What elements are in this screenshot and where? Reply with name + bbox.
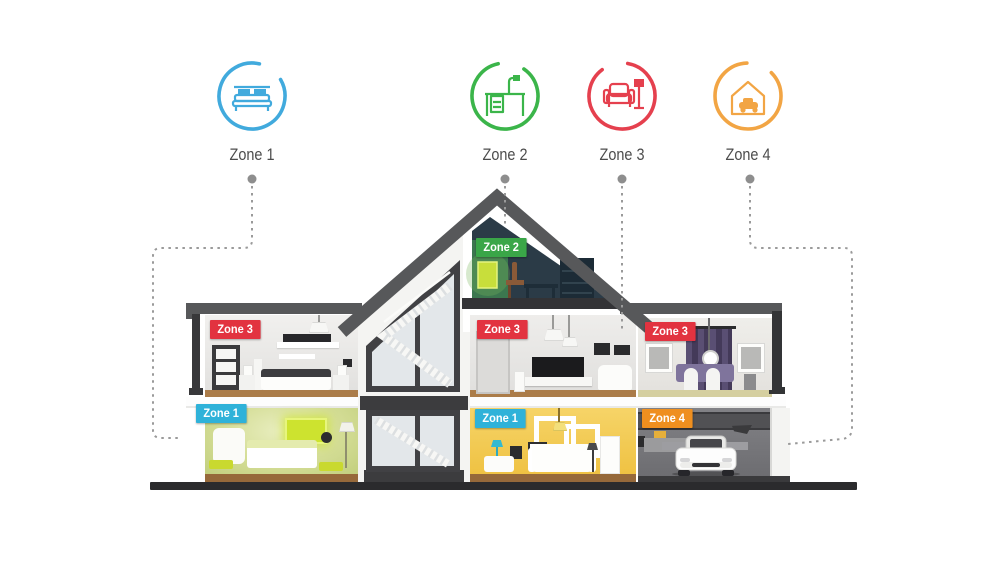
zone3-caption: Zone 3 xyxy=(571,145,673,165)
badge-attic: Zone 2 xyxy=(476,238,526,257)
badge-living-upper-center: Zone 3 xyxy=(477,320,527,339)
connector-zone1 xyxy=(153,186,252,438)
legend-zone3: Zone 3 xyxy=(562,58,682,165)
zone1-caption: Zone 1 xyxy=(201,145,303,165)
connector-dots xyxy=(248,175,755,184)
sofa-floor-lamp-icon xyxy=(584,58,660,134)
badge-garage: Zone 4 xyxy=(642,409,692,428)
zone-connectors xyxy=(153,186,852,444)
legend-zone4: Zone 4 xyxy=(688,58,808,165)
garage-car-icon xyxy=(710,58,786,134)
legend-zone1: Zone 1 xyxy=(192,58,312,165)
bed-icon xyxy=(214,58,290,134)
badge-bedroom-upper-left: Zone 3 xyxy=(210,320,260,339)
zone2-caption: Zone 2 xyxy=(454,145,556,165)
badge-dining-upper-right: Zone 3 xyxy=(645,322,695,341)
legend-zone2: Zone 2 xyxy=(445,58,565,165)
gable-roof xyxy=(342,197,654,332)
desk-lamp-icon xyxy=(467,58,543,134)
badge-living-ground-center: Zone 1 xyxy=(475,409,525,428)
zone4-caption: Zone 4 xyxy=(697,145,799,165)
badge-bedroom-ground-left: Zone 1 xyxy=(196,404,246,423)
connector-zone4 xyxy=(750,186,852,444)
smart-home-zones-infographic: Zone 2 Zone 3 Zone 3 Zone 3 Zone 1 Zone … xyxy=(0,0,1000,563)
